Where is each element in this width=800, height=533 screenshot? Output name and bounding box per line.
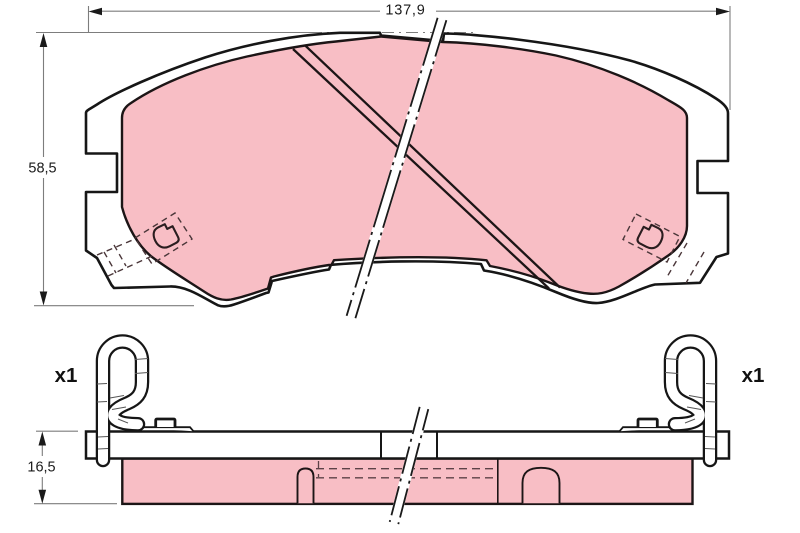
svg-text:x1: x1 xyxy=(742,364,765,387)
svg-text:58,5: 58,5 xyxy=(28,161,56,177)
svg-text:16,5: 16,5 xyxy=(27,460,55,476)
svg-text:137,9: 137,9 xyxy=(385,3,425,19)
svg-text:x1: x1 xyxy=(55,364,78,387)
